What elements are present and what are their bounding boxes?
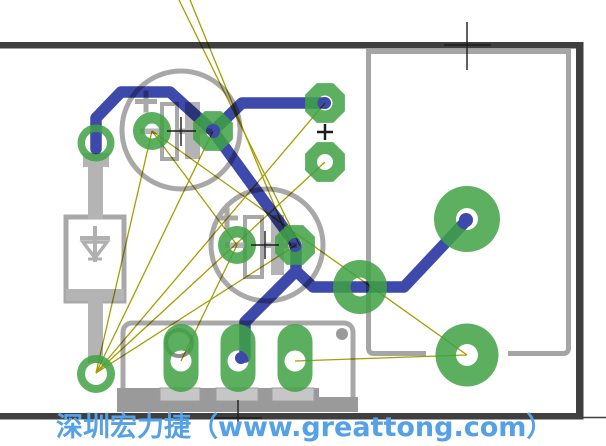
trace-end-dot — [459, 213, 473, 227]
trace-end-dot — [289, 239, 301, 251]
via-plus-mark — [317, 124, 333, 140]
board-edge-top — [0, 42, 583, 49]
diode-lead-top[interactable] — [88, 167, 103, 219]
board-edge-right — [576, 42, 584, 420]
diode-pad-bottom[interactable] — [77, 355, 115, 393]
watermark-text: 深圳宏力捷（www.greattong.com） — [56, 413, 553, 443]
connector-hole[interactable] — [336, 328, 348, 340]
trace-end-dot — [207, 125, 219, 137]
trace-end-dot — [319, 97, 331, 109]
trace-end-dot — [235, 352, 247, 364]
pcb-editor-canvas: 深圳宏力捷（www.greattong.com） — [0, 0, 606, 446]
ratsnest-layer — [96, 0, 467, 373]
connector-flange-right[interactable] — [318, 397, 358, 412]
pcb-layout-view — [0, 0, 606, 446]
